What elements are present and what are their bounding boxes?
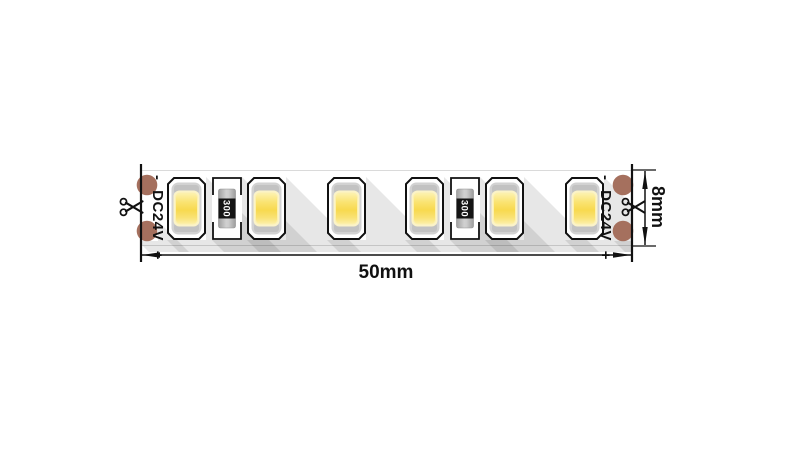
- resistor-2: [450, 177, 480, 240]
- diagram-svg: 300: [0, 0, 800, 450]
- length-dimension-label: 50mm: [359, 262, 414, 283]
- solder-pad-right-bottom: [613, 221, 634, 242]
- solder-pad-right-top: [613, 175, 634, 196]
- height-dimension-label: 8mm: [648, 186, 668, 228]
- led-module-3: [328, 178, 365, 239]
- led-strip-dimension-diagram: 300: [0, 0, 800, 450]
- led-strip: - DC24V + - DC24V +: [120, 164, 679, 262]
- led-module-2: [248, 178, 285, 239]
- led-module-4: [406, 178, 443, 239]
- voltage-label: DC24V: [597, 190, 614, 241]
- polarity-negative: -: [597, 175, 614, 181]
- resistor-1: [212, 177, 242, 240]
- voltage-label: DC24V: [149, 190, 166, 241]
- led-module-1: [168, 178, 205, 239]
- polarity-negative: -: [149, 175, 166, 181]
- led-module-5: [486, 178, 523, 239]
